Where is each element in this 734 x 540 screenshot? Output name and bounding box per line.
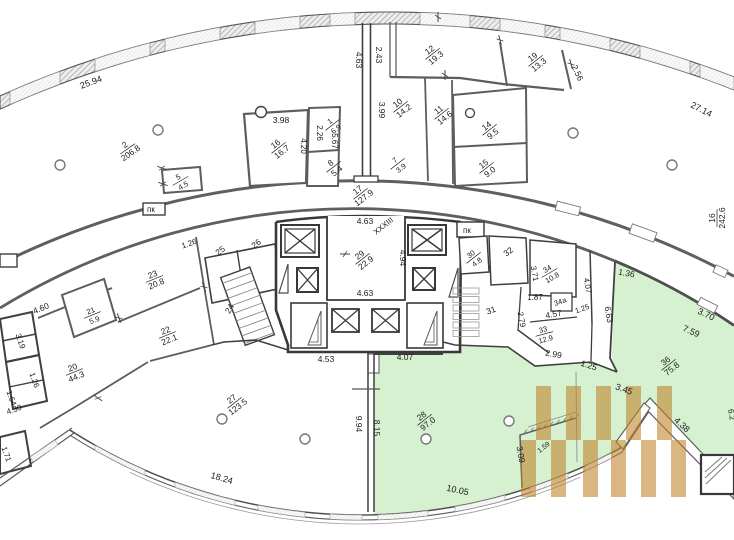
svg-text:1.87: 1.87 <box>527 293 543 302</box>
svg-text:16: 16 <box>707 213 717 223</box>
svg-text:2.43: 2.43 <box>374 47 384 64</box>
svg-text:4.63: 4.63 <box>354 52 364 69</box>
svg-text:2.26: 2.26 <box>315 125 324 141</box>
svg-text:8.15: 8.15 <box>372 420 382 437</box>
svg-text:9.94: 9.94 <box>354 416 364 433</box>
svg-text:пк: пк <box>147 205 155 214</box>
svg-text:4.63: 4.63 <box>357 288 374 298</box>
svg-text:4.63: 4.63 <box>357 216 374 226</box>
svg-text:пк: пк <box>463 226 471 235</box>
svg-text:242.6: 242.6 <box>717 207 727 229</box>
svg-text:3.99: 3.99 <box>377 102 387 119</box>
svg-text:3.98: 3.98 <box>273 115 290 125</box>
svg-text:4.53: 4.53 <box>318 354 335 364</box>
svg-text:4.94: 4.94 <box>398 250 408 267</box>
svg-text:4.20: 4.20 <box>299 138 308 154</box>
svg-text:4.07: 4.07 <box>397 352 414 362</box>
